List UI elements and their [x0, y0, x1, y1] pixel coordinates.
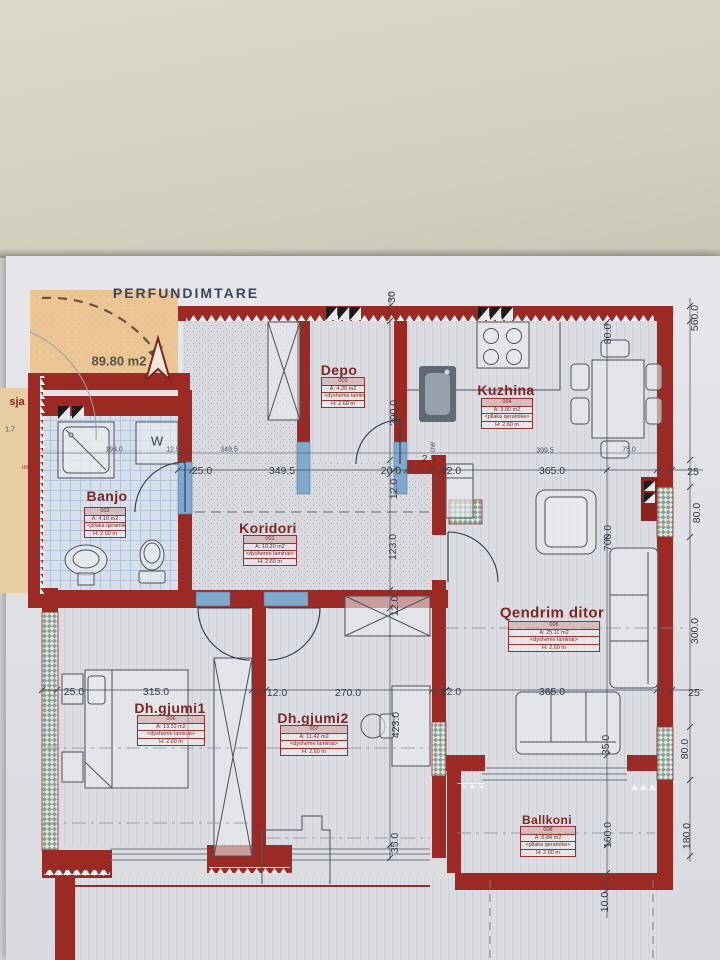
dim-label: 30 [386, 291, 398, 303]
dim-label: 25.0 [192, 465, 212, 477]
room-label-banjo: Banjo [87, 488, 128, 504]
drawing-title: PERFUNDIMTARE [113, 285, 259, 301]
zone-stamp-gjumi2: 007A: 11.42 m2<dysheme laminat>H: 2.60 m [280, 725, 348, 756]
room-label-dhgjumi2: Dh.gjumi2 [277, 710, 348, 726]
floor-plan-photo: PERFUNDIMTARE 89.80 m2 W DW Frigorifer s… [0, 0, 720, 960]
cutoff-dim-label: 1.7 [5, 427, 15, 434]
dim-label: 35.0 [389, 833, 401, 853]
room-label-koridori: Koridori [239, 520, 297, 536]
room-label-depo: Depo [321, 362, 358, 378]
zone-stamp-kuzhina: 004A: 9.80 m2<pllaka qeramike>H: 2.60 m [481, 398, 533, 429]
room-label-dhgjumi1: Dh.gjumi1 [134, 700, 205, 716]
zone-stamp-gjumi1: 006A: 13.32 m2<dysheme laminat>H: 2.60 m [137, 715, 205, 746]
dim-label: 560.0 [689, 305, 701, 331]
dim-label: 25 [687, 466, 699, 478]
dim-label: 12.0 [389, 596, 401, 616]
dim-label: 2.5 [422, 453, 437, 465]
zone-stamp-depo: 003A: 4.20 m2<dysheme laminat>H: 2.60 m [321, 377, 365, 408]
dim-label: 270.0 [335, 687, 361, 699]
dim-label: 25.0 [64, 686, 84, 698]
room-label-kuzhina: Kuzhina [477, 382, 534, 398]
dim-label: 423.0 [390, 712, 402, 738]
dim-label: 349.5 [269, 465, 295, 477]
zone-stamp-qendrim: 005A: 25.11 m2<dysheme laminat>H: 2.60 m [508, 621, 600, 652]
dim-label: 80.0 [679, 739, 691, 759]
dim-label: 365.0 [539, 686, 565, 698]
dim-label: 12.0 [267, 687, 287, 699]
dim-label: 193.0 [105, 447, 123, 454]
dim-label: 123.0 [387, 534, 399, 560]
floor-plan-drawing [0, 0, 720, 960]
dim-label: 399.5 [536, 448, 554, 455]
zone-stamp-koridori: 001A: 10.20 m2<dysheme laminat>H: 2.60 m [243, 535, 297, 566]
dim-label: 12.0 [441, 686, 461, 698]
cutoff-room-label-2: ima [22, 465, 32, 471]
dim-label: 20.0 [381, 465, 401, 477]
dim-label: 349.5 [220, 447, 238, 454]
dim-label: 315.0 [143, 686, 169, 698]
washer-label: W [151, 434, 163, 449]
dim-label: 80.0 [602, 324, 614, 344]
dim-label: 75.0 [622, 447, 636, 454]
dim-label: 25 [688, 687, 700, 699]
room-label-qendrim-ditor: Qendrim ditor [500, 605, 604, 622]
dim-label: 12.0 [388, 479, 400, 499]
cutoff-room-label: sja [9, 396, 24, 408]
dim-label: 180.0 [681, 823, 693, 849]
dim-label: 10.0 [599, 892, 611, 912]
room-label-ballkoni: Ballkoni [522, 813, 572, 827]
dim-label: 290.0 [388, 400, 400, 426]
dishwasher-label: DW [431, 442, 437, 452]
terrace-area-label: 89.80 m2 [92, 354, 147, 369]
zone-stamp-banjo: 002A: 4.10 m2<pllaka qeramike>H: 2.60 m [84, 507, 126, 538]
dim-label: 160.0 [602, 822, 614, 848]
zone-stamp-ballkoni: 008A: 5.84 m2<pllaka qeramike>H: 2.60 m [520, 826, 576, 857]
dim-label: 12.0 [441, 465, 461, 477]
fridge-label: Frigorifer [434, 475, 440, 499]
dim-label: 80.0 [691, 503, 703, 523]
dim-label: 300.0 [689, 618, 701, 644]
dim-label: 12.5 [166, 447, 180, 454]
dim-label: 700.0 [602, 525, 614, 551]
dim-label: 365.0 [539, 465, 565, 477]
dim-label: 35.0 [600, 735, 612, 755]
